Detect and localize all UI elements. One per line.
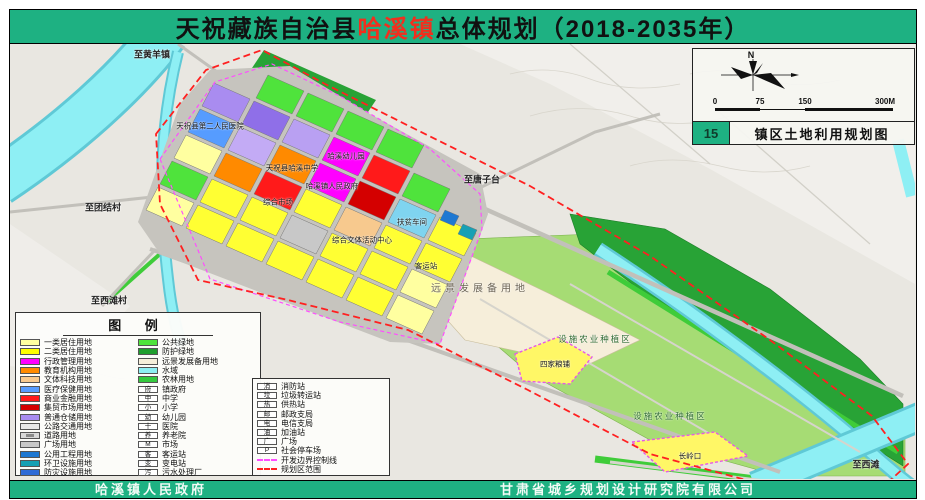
title-prefix: 天祝藏族自治县: [176, 16, 358, 43]
legend-item: 幼幼儿园: [138, 412, 256, 421]
compass-area: N: [693, 49, 914, 95]
legend-item: 热供热站: [257, 400, 385, 409]
scale-bar: 0 75 150 300M: [693, 95, 914, 121]
legend-item-label: 规划区范围: [281, 464, 321, 475]
legend-item: 规划区范围: [257, 465, 385, 474]
title-bar: 天祝藏族自治县哈溪镇总体规划（2018-2035年）: [10, 10, 916, 44]
page-title: 天祝藏族自治县哈溪镇总体规划（2018-2035年）: [176, 9, 751, 44]
legend-symbol-icon: 变: [138, 460, 158, 467]
legend-color-swatch: [20, 432, 40, 439]
map-index-number: 15: [693, 122, 730, 144]
legend-symbol-icon: 幼: [138, 414, 158, 421]
legend-item: 防灾设施用地: [20, 468, 138, 477]
legend-line-swatch: [257, 459, 277, 461]
legend-item: 开发边界控制线: [257, 456, 385, 465]
north-arrow-icon: N: [693, 49, 813, 93]
legend-color-swatch: [20, 414, 40, 421]
legend-color-swatch: [138, 367, 158, 374]
north-label: N: [748, 50, 755, 60]
legend-color-swatch: [20, 348, 40, 355]
legend-symbol-icon: 客: [138, 451, 158, 458]
legend-color-swatch: [20, 367, 40, 374]
legend-symbol-icon: 十: [138, 423, 158, 430]
legend-item: 客客运站: [138, 450, 256, 459]
legend-item: 府镇政府: [138, 384, 256, 393]
legend-item: 公共绿地: [138, 338, 256, 347]
legend-symbol-icon: 小: [138, 404, 158, 411]
legend-item: 小小学: [138, 403, 256, 412]
legend-symbol-icon: 广: [257, 438, 277, 445]
legend-symbol-icon: M: [138, 441, 158, 448]
legend-item: 十医院: [138, 422, 256, 431]
scale-tick: 0: [713, 97, 717, 106]
legend-item: 养养老院: [138, 431, 256, 440]
legend-column-2: 公共绿地防护绿地远景发展备用地水域农林用地府镇政府中中学小小学幼幼儿园十医院养养…: [138, 338, 256, 477]
legend-item: 消消防站: [257, 382, 385, 391]
legend-symbol-icon: 中: [138, 395, 158, 402]
legend-item: 邮邮政支局: [257, 410, 385, 419]
title-town-name: 哈溪镇: [358, 16, 436, 43]
legend-item: 污污水处理厂: [138, 468, 256, 477]
legend-line-swatch: [257, 468, 277, 470]
map-info-panel: N 0 75: [692, 48, 915, 145]
legend-box-extension: 消消防站垃垃圾转运站热供热站邮邮政支局电电信支局油加油站广广场P社会停车场开发边…: [252, 378, 390, 476]
legend-item: 电电信支局: [257, 419, 385, 428]
legend-color-swatch: [20, 451, 40, 458]
legend-color-swatch: [138, 358, 158, 365]
legend-symbol-icon: 油: [257, 429, 277, 436]
plan-sheet-page: 天祝藏族自治县哈溪镇总体规划（2018-2035年）: [0, 0, 925, 500]
legend-item: M市场: [138, 440, 256, 449]
legend-symbol-icon: 消: [257, 383, 277, 390]
legend-symbol-icon: 邮: [257, 411, 277, 418]
legend-item: 公路交通用地: [20, 422, 138, 431]
legend-item: 农林用地: [138, 375, 256, 384]
legend-title: 图 例: [63, 315, 213, 336]
footer-government: 哈溪镇人民政府: [95, 481, 207, 498]
legend-column-3: 消消防站垃垃圾转运站热供热站邮邮政支局电电信支局油加油站广广场P社会停车场开发边…: [257, 382, 385, 474]
map-viewport: 至黄羊镇至团结村至西滩村至唐子台至西滩远景发展备用地设施农业种植区设施农业种植区…: [10, 44, 916, 479]
legend-color-swatch: [20, 404, 40, 411]
footer-design-institute: 甘肃省城乡规划设计研究院有限公司: [500, 481, 756, 498]
legend-item: 中中学: [138, 394, 256, 403]
legend-item: 垃垃圾转运站: [257, 391, 385, 400]
legend-color-swatch: [20, 395, 40, 402]
legend-symbol-icon: 热: [257, 401, 277, 408]
legend-color-swatch: [20, 460, 40, 467]
legend-column-1: 一类居住用地二类居住用地行政管理用地教育机构用地文体科技用地医疗保健用地商业金融…: [20, 338, 138, 477]
legend-color-swatch: [138, 376, 158, 383]
legend-symbol-icon: 垃: [257, 392, 277, 399]
legend-color-swatch: [20, 469, 40, 476]
legend-item-label: 污水处理厂: [162, 467, 202, 478]
legend-symbol-icon: 污: [138, 469, 158, 476]
legend-symbol-icon: 府: [138, 386, 158, 393]
legend-item: 道路用地: [20, 431, 138, 440]
legend-color-swatch: [20, 441, 40, 448]
legend-item: 广广场: [257, 437, 385, 446]
title-suffix: 总体规划（2018-2035年）: [436, 16, 751, 43]
map-index-name: 镇区土地利用规划图: [730, 122, 914, 144]
legend-color-swatch: [20, 423, 40, 430]
legend-color-swatch: [138, 348, 158, 355]
legend-symbol-icon: P: [257, 447, 277, 454]
footer-bar: 哈溪镇人民政府 甘肃省城乡规划设计研究院有限公司: [10, 480, 916, 498]
legend-color-swatch: [20, 376, 40, 383]
scale-tick: 300M: [875, 97, 895, 106]
legend-box: 图 例 一类居住用地二类居住用地行政管理用地教育机构用地文体科技用地医疗保健用地…: [15, 312, 261, 476]
legend-item-label: 防灾设施用地: [44, 467, 92, 478]
legend-color-swatch: [138, 339, 158, 346]
legend-color-swatch: [20, 358, 40, 365]
legend-symbol-icon: 养: [138, 432, 158, 439]
legend-item: 远景发展备用地: [138, 357, 256, 366]
scale-tick: 75: [756, 97, 765, 106]
legend-color-swatch: [20, 386, 40, 393]
map-index: 15 镇区土地利用规划图: [693, 121, 914, 144]
scale-tick: 150: [798, 97, 811, 106]
legend-item: 油加油站: [257, 428, 385, 437]
plan-sheet: 天祝藏族自治县哈溪镇总体规划（2018-2035年）: [9, 9, 917, 499]
legend-item: 水域: [138, 366, 256, 375]
legend-symbol-icon: 电: [257, 420, 277, 427]
legend-color-swatch: [20, 339, 40, 346]
